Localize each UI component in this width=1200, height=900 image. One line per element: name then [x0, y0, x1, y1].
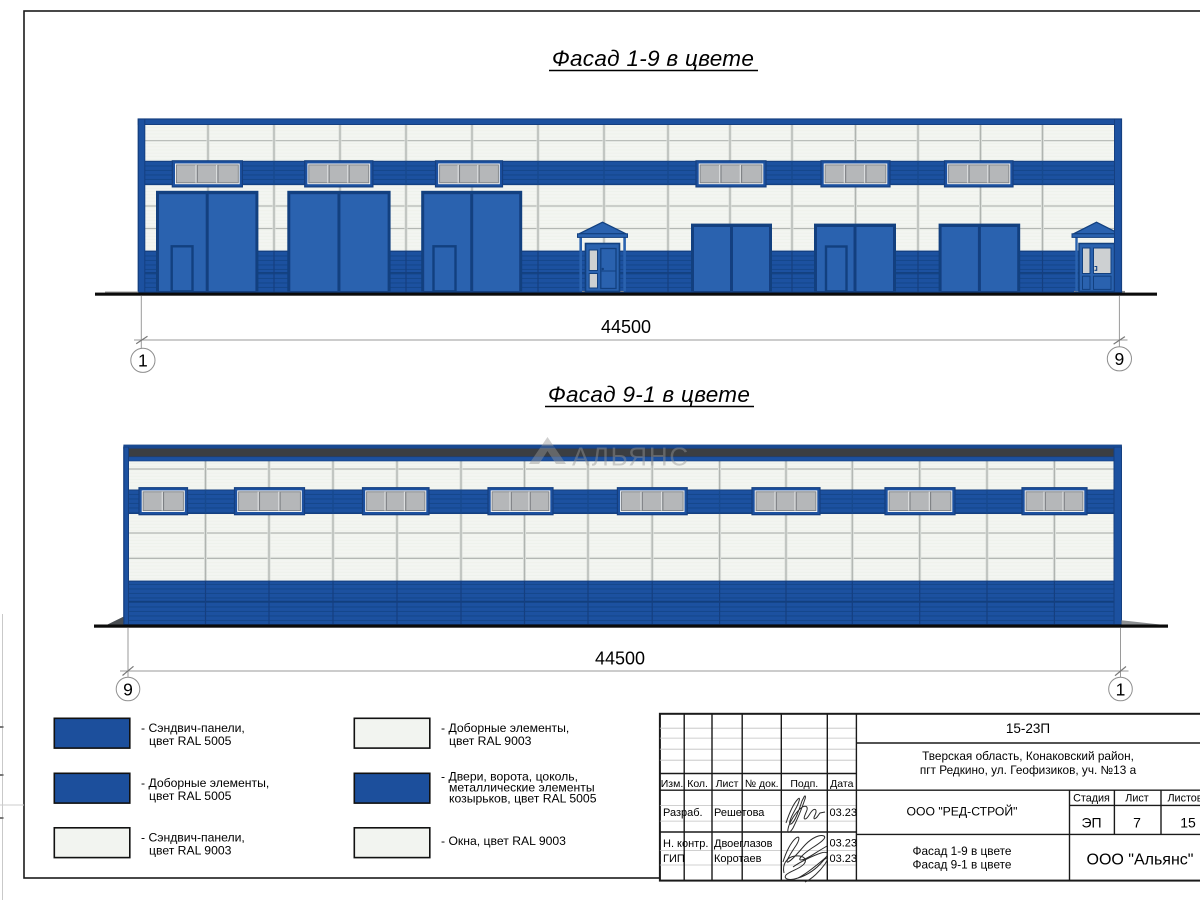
svg-text:Решетова: Решетова	[714, 807, 765, 819]
svg-text:№ док.: № док.	[745, 778, 779, 790]
svg-text:Фасад 1-9 в цвете: Фасад 1-9 в цвете	[913, 844, 1012, 858]
svg-text:- Сэндвич-панели,: - Сэндвич-панели,	[141, 831, 245, 845]
svg-text:15: 15	[1180, 815, 1196, 831]
svg-text:Дата: Дата	[830, 778, 853, 790]
svg-text:Кол.: Кол.	[687, 778, 708, 790]
svg-text:Изм.: Изм.	[661, 778, 684, 790]
svg-text:Подп.: Подп.	[790, 778, 818, 790]
svg-text:ГИП: ГИП	[663, 853, 685, 865]
svg-text:03.23: 03.23	[830, 807, 858, 819]
svg-text:АЛЬЯНС: АЛЬЯНС	[572, 442, 690, 472]
svg-text:9: 9	[1115, 349, 1125, 369]
svg-text:Коротаев: Коротаев	[714, 853, 762, 865]
svg-text:Н. контр.: Н. контр.	[663, 838, 708, 850]
svg-text:9: 9	[123, 679, 133, 699]
svg-text:1: 1	[138, 351, 148, 371]
svg-text:цвет RAL 5005: цвет RAL 5005	[149, 734, 232, 748]
svg-text:Фасад 9-1 в цвете: Фасад 9-1 в цвете	[548, 382, 750, 407]
svg-text:- Доборные элементы,: - Доборные элементы,	[141, 776, 269, 790]
svg-text:44500: 44500	[595, 649, 645, 669]
svg-text:Листов: Листов	[1167, 793, 1200, 805]
svg-text:Стадия: Стадия	[1073, 793, 1110, 805]
svg-text:ООО "Альянс": ООО "Альянс"	[1087, 852, 1194, 869]
svg-text:03.23: 03.23	[830, 838, 858, 850]
svg-text:ООО "РЕД-СТРОЙ": ООО "РЕД-СТРОЙ"	[907, 804, 1018, 819]
svg-text:03.23: 03.23	[830, 853, 858, 865]
svg-text:Лист: Лист	[716, 778, 739, 790]
svg-text:Лист: Лист	[1125, 793, 1149, 805]
svg-text:цвет RAL 5005: цвет RAL 5005	[149, 789, 232, 803]
svg-text:козырьков, цвет RAL 5005: козырьков, цвет RAL 5005	[449, 792, 597, 806]
svg-text:- Сэндвич-панели,: - Сэндвич-панели,	[141, 721, 245, 735]
svg-text:- Окна, цвет RAL 9003: - Окна, цвет RAL 9003	[441, 834, 566, 848]
svg-text:Фасад 9-1 в цвете: Фасад 9-1 в цвете	[913, 858, 1012, 872]
svg-text:пгт Редкино, ул. Геофизиков, у: пгт Редкино, ул. Геофизиков, уч. №13 а	[920, 763, 1137, 777]
svg-text:цвет RAL 9003: цвет RAL 9003	[149, 844, 232, 858]
svg-text:Двоеглазов: Двоеглазов	[714, 838, 773, 850]
svg-text:Тверская область, Конаковский: Тверская область, Конаковский район,	[922, 749, 1134, 763]
svg-text:44500: 44500	[601, 317, 651, 337]
svg-text:15-23П: 15-23П	[1006, 721, 1050, 736]
svg-text:- Доборные элементы,: - Доборные элементы,	[441, 721, 569, 735]
svg-text:Разраб.: Разраб.	[663, 807, 703, 819]
svg-text:7: 7	[1133, 815, 1141, 831]
svg-text:1: 1	[1116, 679, 1126, 699]
svg-text:Фасад 1-9 в цвете: Фасад 1-9 в цвете	[552, 46, 754, 71]
svg-text:ЭП: ЭП	[1081, 815, 1101, 831]
svg-text:цвет RAL 9003: цвет RAL 9003	[449, 734, 532, 748]
